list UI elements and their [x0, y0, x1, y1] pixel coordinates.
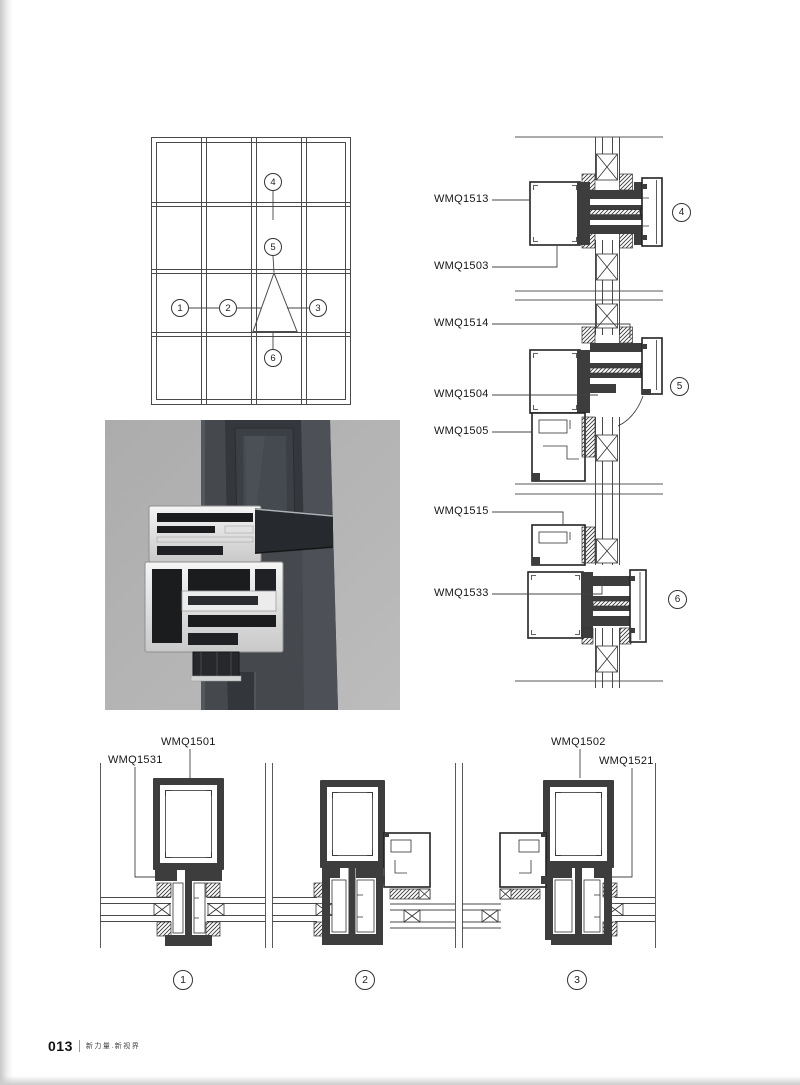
callout-detail-1-number: 1 — [180, 974, 186, 986]
scan-edge-bottom — [0, 1076, 800, 1085]
profile-label-wmq1502: WMQ1502 — [551, 736, 606, 749]
callout-detail-3: 3 — [567, 970, 587, 990]
callout-1: 1 — [171, 299, 189, 317]
callout-detail-6: 6 — [668, 590, 687, 609]
callout-3-number: 3 — [315, 303, 320, 314]
profile-label-wmq1514: WMQ1514 — [434, 317, 489, 330]
elevation-diagram: 1 2 3 4 5 6 — [150, 135, 352, 407]
callout-4: 4 — [264, 173, 282, 191]
callout-5-number: 5 — [270, 242, 275, 253]
callout-detail-5: 5 — [670, 377, 689, 396]
profile-label-wmq1501: WMQ1501 — [161, 736, 216, 749]
detail-4-drawing — [530, 174, 662, 248]
callout-detail-4: 4 — [672, 203, 691, 222]
profile-label-wmq1505: WMQ1505 — [434, 425, 489, 438]
callout-detail-4-number: 4 — [679, 207, 685, 218]
render-drawing — [105, 420, 400, 710]
profile-label-wmq1503: WMQ1503 — [434, 260, 489, 273]
profile-label-wmq1521: WMQ1521 — [599, 755, 654, 768]
callout-2: 2 — [219, 299, 237, 317]
callout-3: 3 — [309, 299, 327, 317]
profile-label-wmq1533: WMQ1533 — [434, 587, 489, 600]
callout-detail-2-number: 2 — [362, 974, 368, 986]
page-footer: 013 新力量.新视界 — [48, 1038, 140, 1054]
footer-divider — [79, 1040, 80, 1052]
detail-6-drawing — [528, 525, 646, 644]
vent-opening-symbol — [253, 273, 297, 332]
profile-label-wmq1504: WMQ1504 — [434, 388, 489, 401]
callout-4-number: 4 — [270, 177, 275, 188]
vertical-section-details: WMQ1513 WMQ1503 WMQ1514 WMQ1504 WMQ1505 … — [430, 128, 730, 688]
detail-1-drawing — [100, 778, 265, 946]
detail-2-drawing — [272, 780, 455, 945]
scan-edge-left — [0, 0, 13, 1085]
callout-2-number: 2 — [225, 303, 230, 314]
profile-label-wmq1531: WMQ1531 — [108, 754, 163, 767]
callout-6-number: 6 — [270, 353, 275, 364]
detail-3-drawing — [462, 780, 655, 945]
curtain-wall-grid — [152, 138, 351, 405]
profile-3d-render — [105, 420, 400, 710]
callout-5: 5 — [264, 238, 282, 256]
callout-detail-3-number: 3 — [574, 974, 580, 986]
footer-slogan: 新力量.新视界 — [86, 1041, 140, 1051]
horizontal-section-details: WMQ1501 WMQ1531 WMQ1502 WMQ1521 1 2 3 — [45, 730, 725, 995]
callout-detail-5-number: 5 — [677, 381, 683, 392]
horizontal-sections-drawing — [45, 730, 725, 995]
callout-6: 6 — [264, 349, 282, 367]
callout-detail-1: 1 — [173, 970, 193, 990]
callout-1-number: 1 — [177, 303, 182, 314]
elevation-grid — [150, 135, 352, 407]
profile-label-wmq1513: WMQ1513 — [434, 193, 489, 206]
catalog-page: 1 2 3 4 5 6 — [0, 0, 800, 1085]
callout-detail-6-number: 6 — [675, 594, 681, 605]
profile-label-wmq1515: WMQ1515 — [434, 505, 489, 518]
page-number: 013 — [48, 1038, 73, 1054]
callout-detail-2: 2 — [355, 970, 375, 990]
